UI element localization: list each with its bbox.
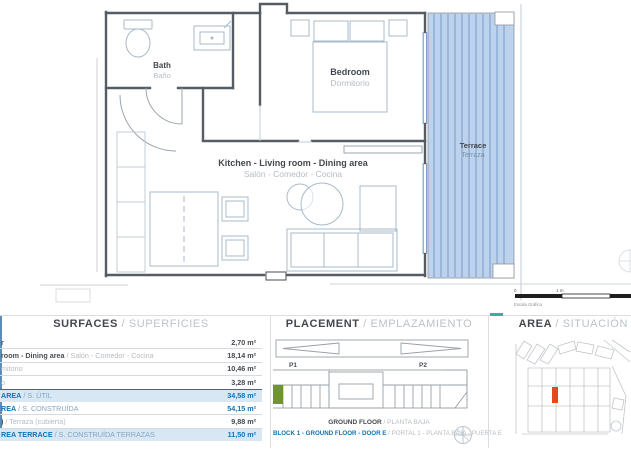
teal-accent-line — [490, 313, 503, 316]
scale-bar: 0 1 m Escala Gráfica — [514, 288, 631, 307]
row-sublabel: o — [1, 378, 5, 387]
placement-title-en: PLACEMENT — [286, 318, 360, 330]
living-label: Kitchen - Living room - Dining area — [218, 158, 369, 168]
surfaces-title-es: / SUPERFICIES — [122, 318, 209, 330]
surface-row-total-useful: AREA / S. ÚTIL 34,58 m² — [0, 390, 262, 402]
arrow-right-icon — [401, 343, 461, 354]
highlighted-unit — [273, 385, 283, 404]
bath-label: Bath — [153, 61, 171, 70]
stair-core — [329, 372, 383, 408]
row-value: 3,28 m² — [231, 378, 256, 387]
surface-row: o 3,28 m² — [0, 376, 262, 389]
row-label: AREA — [1, 391, 21, 400]
row-sublabel: / S. CONSTRUÍDA TERRAZAS — [53, 430, 155, 439]
pillow-icon — [350, 21, 384, 41]
placement-title-es: / EMPLAZAMIENTO — [363, 318, 472, 330]
row-value: 54,15 m² — [227, 404, 256, 413]
bed-icon — [291, 20, 407, 112]
area-title-en: AREA — [519, 318, 552, 330]
toilet-icon — [126, 29, 150, 57]
panel-separator — [488, 316, 489, 448]
panel-separator — [270, 316, 271, 448]
area-title-es: / SITUACIÓN — [555, 318, 628, 330]
floor-caption-es: / PLANTA BAJA — [382, 419, 430, 426]
p2-label: P2 — [419, 362, 427, 369]
terrace-label: Terrace — [460, 141, 487, 150]
compass-icon — [619, 250, 631, 272]
terrace-notch-bottom — [493, 264, 514, 278]
kitchen-counter-icon — [117, 132, 145, 272]
bedroom-sublabel: Dormitorio — [330, 78, 369, 88]
arrow-left-icon — [283, 343, 339, 354]
bedroom-label: Bedroom — [330, 67, 370, 77]
placement-title: PLACEMENT / EMPLAZAMIENTO — [272, 318, 486, 330]
dining-set-icon — [150, 192, 248, 266]
surface-row-built-terrace: REA TERRACE / S. CONSTRUÍDA TERRAZAS 11,… — [0, 429, 262, 441]
row-sublabel: mitorio — [1, 364, 23, 373]
scale-caption: Escala Gráfica — [514, 302, 543, 307]
unit-caption-en: BLOCK 1 - GROUND FLOOR - DOOR E — [273, 430, 386, 437]
scale-one-label: 1 m — [556, 288, 564, 293]
surface-row: ) / Terraza (cubierta) 9,88 m² — [0, 415, 262, 428]
row-value: 2,70 m² — [231, 338, 256, 347]
row-sublabel: / Terraza (cubierta) — [3, 417, 65, 426]
floor-caption-en: GROUND FLOOR — [328, 419, 381, 426]
surface-row: room - Dining area / Salón - Comedor - C… — [0, 349, 262, 362]
floorplan-sheet: Bath Baño Bedroom Dormitorio Kitchen - L… — [0, 0, 631, 464]
row-label: REA TERRACE — [1, 430, 53, 439]
section-divider — [0, 315, 631, 316]
scale-zero-label: 0 — [514, 288, 517, 293]
roundabout — [611, 421, 621, 431]
surfaces-title-en: SURFACES — [53, 318, 118, 330]
row-label: REA — [1, 404, 16, 413]
unit-caption-es: / PORTAL 1 - PLANTA BAJA - PUERTA E — [386, 430, 501, 437]
placement-diagram: P1 P2 — [273, 336, 473, 414]
nightstand-right-icon — [389, 20, 407, 36]
surfaces-table: r 2,70 m² room - Dining area / Salón - C… — [0, 336, 262, 441]
pillow-icon — [314, 21, 348, 41]
sliding-door-icon — [344, 146, 422, 153]
surfaces-title: SURFACES / SUPERFICIES — [0, 318, 262, 330]
door-swings — [120, 88, 422, 153]
compass-icon — [452, 424, 474, 446]
walls — [106, 4, 425, 276]
area-title: AREA / SITUACIÓN — [478, 318, 628, 330]
toilet-tank-icon — [124, 20, 152, 29]
row-value: 11,50 m² — [228, 430, 256, 439]
floor-plan: Bath Baño Bedroom Dormitorio Kitchen - L… — [0, 0, 631, 310]
row-value: 9,88 m² — [231, 417, 256, 426]
living-sublabel: Salón - Comedor - Cocina — [244, 169, 343, 179]
entry-door-icon — [266, 272, 286, 280]
row-value: 18,14 m² — [227, 351, 256, 360]
row-label: room - Dining area — [1, 351, 65, 360]
nightstand-left-icon — [291, 20, 309, 36]
map-streets — [516, 340, 630, 434]
surface-row-built: REA / S. CONSTRUÍDA 54,15 m² — [0, 402, 262, 415]
p1-label: P1 — [289, 362, 297, 369]
surface-row: r 2,70 m² — [0, 336, 262, 349]
terrace-notch-top — [495, 12, 514, 25]
row-sublabel: / S. CONSTRUÍDA — [16, 404, 78, 413]
building-end — [445, 370, 467, 408]
bath-sublabel: Baño — [153, 71, 171, 80]
terrace-sublabel: Terraza — [461, 152, 484, 159]
row-value: 34,58 m² — [227, 391, 256, 400]
row-sublabel: / Salón - Comedor - Cocina — [65, 351, 154, 360]
round-table-icon — [287, 183, 343, 225]
bath-fixtures — [124, 20, 231, 57]
row-sublabel: / S. ÚTIL — [21, 391, 51, 400]
context-lines — [40, 4, 631, 302]
highlighted-plot — [552, 387, 558, 403]
row-label: r — [1, 338, 4, 347]
situation-map — [512, 338, 631, 435]
surface-row: mitorio 10,46 m² — [0, 363, 262, 376]
row-value: 10,46 m² — [227, 364, 256, 373]
